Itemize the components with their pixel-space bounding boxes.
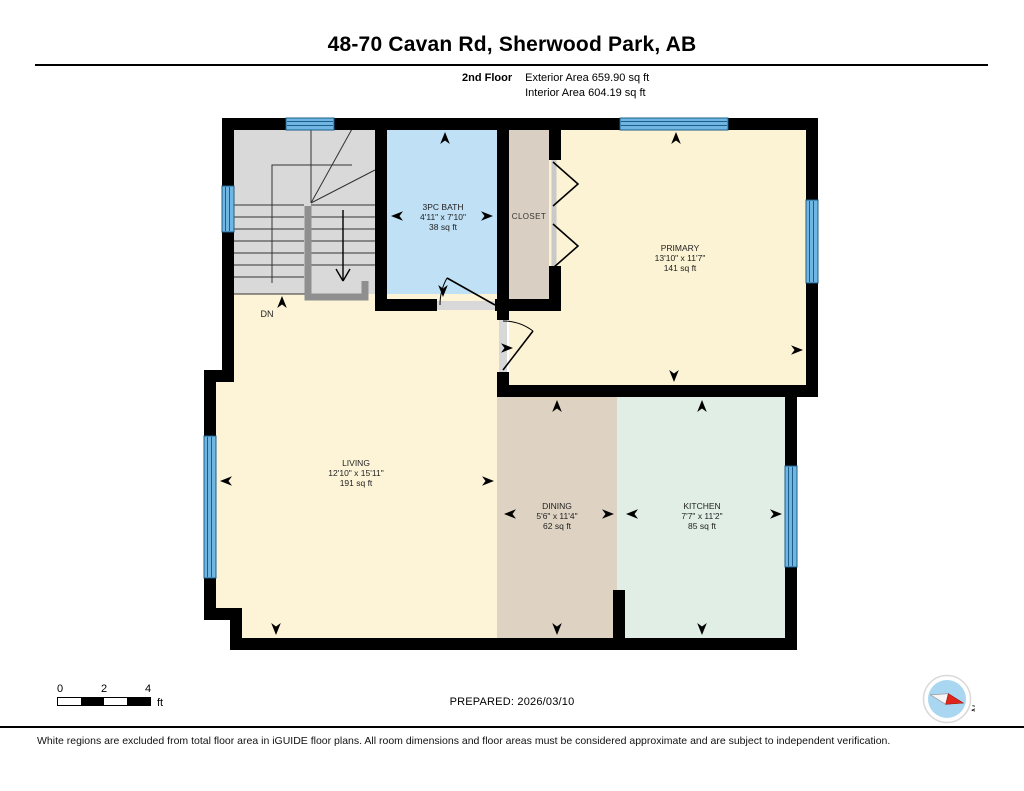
closet-name: CLOSET bbox=[512, 212, 546, 221]
scale-tick-0: 0 bbox=[57, 683, 63, 695]
bath-name: 3PC BATH bbox=[423, 202, 464, 212]
stairs-dn-label: DN bbox=[261, 309, 274, 319]
room-floors bbox=[216, 129, 808, 638]
compass-icon: N bbox=[919, 671, 975, 727]
dining-dimensions: 5'6" x 11'4" bbox=[536, 511, 577, 521]
primary-area: 141 sq ft bbox=[664, 263, 697, 273]
dining-area: 62 sq ft bbox=[543, 521, 572, 531]
scale-tick-4: 4 bbox=[145, 683, 151, 695]
scale-tick-2: 2 bbox=[101, 683, 107, 695]
footer-divider bbox=[0, 726, 1024, 728]
prepared-date-label: PREPARED: 2026/03/10 bbox=[0, 696, 1024, 708]
bath-area: 38 sq ft bbox=[429, 222, 458, 232]
kitchen-area: 85 sq ft bbox=[688, 521, 717, 531]
floorplan-drawing: 3PC BATH 4'11" x 7'10" 38 sq ft CLOSET P… bbox=[0, 0, 1024, 791]
footer-disclaimer: White regions are excluded from total fl… bbox=[37, 735, 1004, 747]
kitchen-dimensions: 7'7" x 11'2" bbox=[681, 511, 722, 521]
window-right-primary bbox=[806, 200, 818, 283]
floorplan-page: 48-70 Cavan Rd, Sherwood Park, AB 2nd Fl… bbox=[0, 0, 1024, 791]
primary-name: PRIMARY bbox=[661, 243, 700, 253]
living-area: 191 sq ft bbox=[340, 478, 373, 488]
bath-dimensions: 4'11" x 7'10" bbox=[420, 212, 466, 222]
scale-ticks: 0 2 4 bbox=[57, 683, 187, 696]
window-top-stairs bbox=[286, 118, 334, 130]
window-left-living bbox=[204, 436, 216, 578]
window-left-stairs bbox=[222, 186, 234, 232]
primary-dimensions: 13'10" x 11'7" bbox=[655, 253, 706, 263]
living-name: LIVING bbox=[342, 458, 370, 468]
window-right-kitchen bbox=[785, 466, 797, 567]
kitchen-name: KITCHEN bbox=[683, 501, 720, 511]
living-dimensions: 12'10" x 15'11" bbox=[328, 468, 383, 478]
dining-name: DINING bbox=[542, 501, 572, 511]
window-top-primary bbox=[620, 118, 728, 130]
stairs-floor bbox=[233, 129, 375, 294]
